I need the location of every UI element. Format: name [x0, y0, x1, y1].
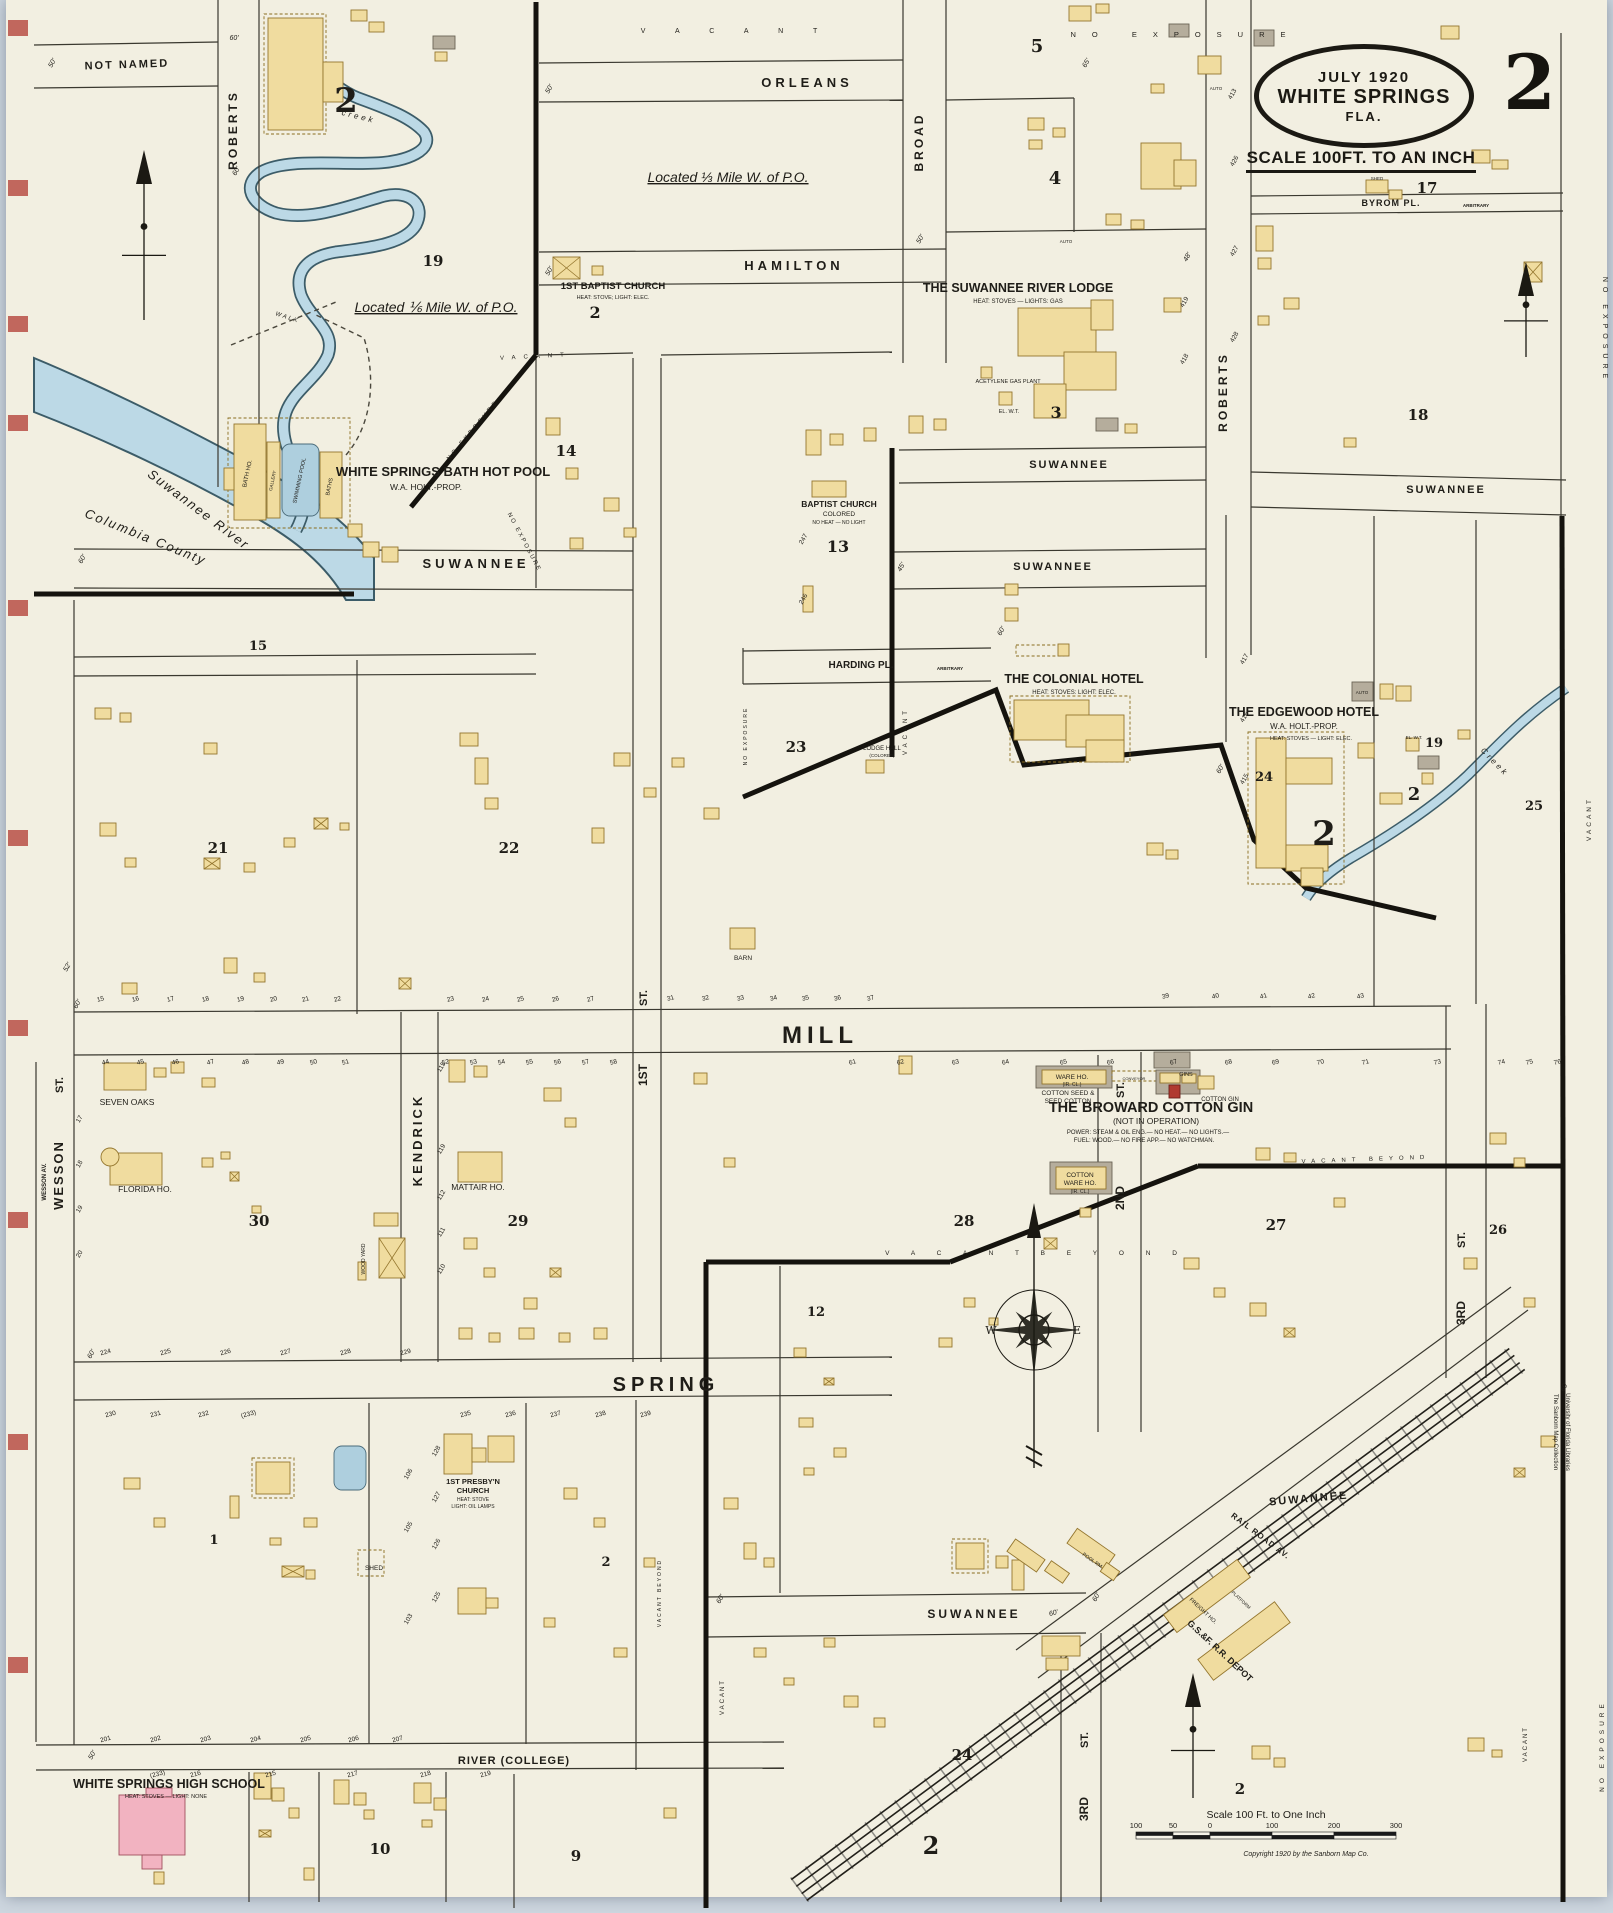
map-text: 205	[299, 1735, 312, 1745]
map-text: 239	[639, 1410, 652, 1420]
map-text: 204	[249, 1735, 262, 1745]
map-text: 217	[346, 1770, 359, 1780]
map-text: 2	[601, 1555, 610, 1570]
map-text: 428	[1229, 330, 1241, 343]
map-text: VACANT BEYOND	[657, 1559, 663, 1627]
map-text: 226	[219, 1348, 232, 1358]
building	[444, 1434, 472, 1474]
building	[224, 468, 234, 490]
map-text: AUTO	[1356, 690, 1369, 695]
map-text: 419	[1179, 295, 1191, 308]
building	[594, 1328, 607, 1339]
building	[268, 18, 323, 130]
map-text: 100	[1266, 1821, 1279, 1830]
map-text: 73	[1433, 1058, 1442, 1067]
building	[799, 1418, 813, 1427]
building	[488, 1436, 514, 1462]
building	[1252, 1746, 1270, 1759]
map-text: Scale 100 Ft. to One Inch	[1206, 1809, 1325, 1821]
building	[458, 1152, 502, 1182]
map-text: The Sanborn Map Collection	[1552, 1394, 1558, 1470]
building	[122, 983, 137, 994]
building	[1028, 118, 1044, 130]
railroad-tracks	[791, 1349, 1524, 1901]
map-text: 70	[1316, 1058, 1325, 1067]
building	[221, 1152, 230, 1159]
map-text: 103	[403, 1612, 415, 1625]
map-state: FLA.	[1346, 109, 1383, 124]
map-text: 127	[431, 1490, 443, 1503]
map-text: ARBITRARY	[937, 666, 963, 671]
map-text: 215	[264, 1770, 277, 1780]
map-text: ROBERTS	[1216, 352, 1230, 432]
building	[1160, 1073, 1180, 1083]
building	[644, 788, 656, 797]
map-text: COTTON GIN	[1201, 1097, 1239, 1103]
map-text: 48	[241, 1058, 250, 1067]
building	[1096, 418, 1118, 431]
building	[1131, 220, 1144, 229]
map-text: 106	[403, 1467, 415, 1480]
map-text: 12	[807, 1305, 825, 1320]
building	[363, 542, 379, 557]
map-text: 224	[99, 1348, 112, 1358]
building	[154, 1068, 166, 1077]
map-text: 75	[1525, 1058, 1534, 1067]
map-text: 47	[206, 1058, 215, 1067]
map-text: BYROM PL.	[1361, 198, 1420, 208]
building	[1380, 793, 1402, 804]
map-text: 15	[96, 995, 105, 1004]
map-text: 18	[1408, 406, 1429, 424]
title-oval: JULY 1920 WHITE SPRINGS FLA.	[1254, 44, 1474, 148]
map-text: 74	[1497, 1058, 1506, 1067]
building	[433, 36, 455, 49]
building	[794, 1348, 806, 1357]
map-text: MATTAIR HO.	[451, 1182, 505, 1192]
building	[364, 1810, 374, 1819]
map-text: 26	[551, 995, 560, 1004]
map-text: KENDRICK	[410, 1094, 425, 1187]
map-text: ST.	[638, 990, 650, 1006]
building	[1286, 758, 1332, 784]
map-text: VACANT	[1523, 1726, 1529, 1762]
map-text: BAPTIST CHURCH	[801, 499, 877, 509]
map-text: THE SUWANNEE RIVER LODGE	[923, 281, 1113, 295]
map-text: (IR. CL.)	[1071, 1189, 1090, 1195]
building	[1396, 686, 1411, 701]
map-text: THE COLONIAL HOTEL	[1004, 672, 1144, 686]
map-text: 60'	[996, 625, 1007, 637]
building	[1344, 438, 1356, 447]
map-text: 207	[391, 1735, 404, 1745]
map-text: 27	[586, 995, 595, 1004]
map-text: Located ⅙ Mile W. of P.O.	[355, 299, 518, 315]
building	[142, 1855, 162, 1869]
building	[1174, 160, 1196, 186]
building	[834, 1448, 846, 1457]
building	[1256, 226, 1273, 251]
map-text: 60'	[77, 553, 88, 565]
building	[1301, 868, 1323, 886]
scale-note: SCALE 100FT. TO AN INCH	[1246, 148, 1476, 173]
map-text: 2	[1312, 814, 1336, 854]
building	[101, 1148, 119, 1166]
map-text: 50'	[87, 1749, 98, 1761]
map-text: 35	[801, 994, 810, 1003]
map-text: POWER: STEAM & OIL ENG.— NO HEAT.— NO LI…	[1067, 1130, 1229, 1136]
map-text: 427	[1229, 244, 1241, 257]
building	[284, 838, 295, 847]
map-text: 25	[516, 995, 525, 1004]
map-text: 50'	[47, 57, 58, 69]
building	[489, 1333, 500, 1342]
map-text: WALK	[275, 311, 301, 324]
map-text: 227	[279, 1348, 292, 1358]
map-text: 125	[431, 1590, 443, 1603]
building	[866, 760, 884, 773]
map-text: 230	[104, 1410, 117, 1420]
map-text: NO HEAT — NO LIGHT	[812, 520, 865, 526]
map-text: 16	[131, 995, 140, 1004]
map-text: 41	[1259, 992, 1268, 1001]
map-text: 18	[75, 1159, 85, 1169]
building	[824, 1638, 835, 1647]
map-text: 58	[609, 1058, 618, 1067]
map-text: 69	[1271, 1058, 1280, 1067]
map-text: University of Florida Libraries	[1564, 1393, 1570, 1471]
building	[254, 973, 265, 982]
sanborn-map-canvas: Scale 100 Ft. to One Inch100500100200300…	[6, 0, 1613, 1913]
map-text: 229	[399, 1348, 412, 1358]
map-text: 4	[1049, 168, 1062, 189]
lot-numbers: 1516171819202122232425262731323334353637…	[75, 87, 1563, 1779]
map-sheet: Scale 100 Ft. to One Inch100500100200300…	[0, 0, 1613, 1913]
map-text: SUWANNEE	[1013, 561, 1093, 573]
building	[844, 1696, 858, 1707]
map-text: ST.	[54, 1077, 66, 1093]
map-text: HEAT: STOVES — LIGHTS: GAS	[973, 299, 1062, 305]
map-text: CONVEYOR	[1123, 1076, 1146, 1081]
map-text: FUEL: WOOD.— NO FIRE APP.— NO WATCHMAN.	[1074, 1138, 1215, 1144]
map-text: SHED	[365, 1565, 383, 1572]
map-text: 100	[1130, 1821, 1143, 1830]
building	[1169, 1085, 1180, 1098]
building	[724, 1158, 735, 1167]
map-text: 19	[236, 995, 245, 1004]
map-text: 417	[1239, 652, 1251, 665]
map-text: 37	[866, 994, 875, 1003]
map-text: 60'	[715, 1593, 726, 1605]
building	[624, 528, 636, 537]
map-text: 33	[736, 994, 745, 1003]
map-text: 24	[952, 1746, 973, 1764]
map-text: 203	[199, 1735, 212, 1745]
building	[1151, 84, 1164, 93]
map-text: 60'	[86, 1348, 97, 1360]
map-text: HEAT: STOVE	[457, 1497, 490, 1503]
building	[120, 713, 131, 722]
building	[1418, 756, 1439, 769]
map-text: 61	[848, 1058, 857, 1067]
building	[1058, 644, 1069, 656]
map-text: 24	[1255, 770, 1273, 785]
map-text: SUWANNEE	[1269, 1490, 1349, 1509]
building	[369, 22, 384, 32]
map-text: 17	[166, 995, 175, 1004]
building	[1125, 424, 1137, 433]
map-text: 2	[1408, 784, 1421, 805]
building	[1198, 1076, 1214, 1089]
building	[289, 1808, 299, 1818]
map-text: creek	[341, 108, 377, 125]
building	[909, 416, 923, 433]
map-text: WOOD YARD	[361, 1243, 367, 1274]
building	[764, 1558, 774, 1567]
building	[340, 823, 349, 830]
map-text: V A C A N T B E Y O N D	[885, 1250, 1187, 1257]
building	[374, 1213, 398, 1226]
map-text: (233)	[240, 1409, 256, 1420]
map-text: 19	[1425, 736, 1443, 751]
map-text: ACETYLENE GAS PLANT	[975, 379, 1041, 385]
map-text: HEAT: STOVES — LIGHT: ELEC.	[1270, 736, 1352, 742]
map-text: 65'	[1081, 57, 1092, 69]
building	[358, 1550, 384, 1576]
map-text: COLORED	[823, 511, 855, 518]
map-text: 22	[499, 839, 520, 857]
building	[154, 1872, 164, 1884]
map-text: 63	[951, 1058, 960, 1067]
building	[1458, 730, 1470, 739]
map-text: 54	[497, 1058, 506, 1067]
building	[874, 1718, 885, 1727]
building	[460, 733, 478, 746]
building	[1012, 1560, 1024, 1590]
map-text: 415	[1239, 772, 1251, 785]
map-text: 200	[1328, 1821, 1341, 1830]
building	[1091, 300, 1113, 330]
building	[1422, 773, 1433, 784]
building	[996, 1556, 1008, 1568]
building	[1214, 1288, 1225, 1297]
building	[464, 1238, 477, 1249]
building	[570, 538, 583, 549]
map-text: MILL	[782, 1022, 858, 1049]
building	[472, 1448, 486, 1462]
building	[964, 1298, 975, 1307]
map-text: 225	[159, 1348, 172, 1358]
building	[592, 828, 604, 843]
map-text: SEVEN OAKS	[100, 1097, 155, 1107]
building	[672, 758, 684, 767]
map-text: 5	[1031, 36, 1044, 57]
building	[1184, 1258, 1199, 1269]
building	[458, 1588, 486, 1614]
map-text: 15	[249, 639, 267, 654]
building	[594, 1518, 605, 1527]
map-text: VACANT	[720, 1679, 726, 1715]
map-text: BARN	[734, 955, 752, 962]
map-text: BROAD	[912, 113, 926, 172]
map-text: HAMILTON	[744, 258, 843, 273]
map-text: ORLEANS	[761, 75, 853, 90]
building	[230, 1496, 239, 1518]
map-text: 9	[571, 1847, 581, 1865]
building	[100, 823, 116, 836]
building	[95, 708, 111, 719]
building	[566, 468, 578, 479]
building	[1005, 584, 1018, 595]
map-text: 2	[1235, 1780, 1245, 1798]
building	[1042, 1636, 1080, 1656]
map-text: Columbia County	[83, 506, 209, 569]
building	[1166, 850, 1178, 859]
map-text: ST.	[1115, 1082, 1127, 1098]
map-text: WARE HO.	[1064, 1180, 1097, 1187]
map-text: 30	[249, 1212, 270, 1230]
map-text: W	[985, 1324, 997, 1337]
map-text: SUWANNEE	[927, 1607, 1020, 1621]
map-text: 64	[1001, 1058, 1010, 1067]
building	[544, 1618, 555, 1627]
map-text: PLATFORM	[1230, 1590, 1251, 1610]
map-text: HEAT: STOVES: LIGHT: ELEC.	[1032, 690, 1116, 696]
map-text: EL. W.T.	[1406, 735, 1423, 740]
map-text: Copyright 1920 by the Sanborn Map Co.	[1243, 1851, 1368, 1858]
building	[1086, 740, 1124, 762]
map-text: 50'	[915, 233, 926, 245]
building	[256, 1462, 290, 1494]
building	[1029, 140, 1042, 149]
building	[485, 798, 498, 809]
map-text: 68	[1224, 1058, 1233, 1067]
building	[1358, 743, 1374, 758]
building	[1250, 1303, 1266, 1316]
map-text: 228	[339, 1348, 352, 1358]
scale-bar: Scale 100 Ft. to One Inch100500100200300…	[1130, 1809, 1403, 1858]
map-text: 56	[553, 1058, 562, 1067]
building	[1064, 352, 1116, 390]
map-text: THE EDGEWOOD HOTEL	[1229, 705, 1379, 719]
map-text: ROBERTS	[226, 90, 240, 170]
map-text: 19	[75, 1204, 85, 1214]
map-text: 23	[446, 995, 455, 1004]
map-text: 1ST BAPTIST CHURCH	[561, 281, 666, 292]
building	[119, 1795, 185, 1855]
building	[999, 392, 1012, 405]
building	[125, 858, 136, 867]
map-text: WESSON AV.	[42, 1163, 48, 1200]
building	[272, 1788, 284, 1801]
building	[1256, 738, 1286, 868]
map-text: ST.	[1456, 1232, 1468, 1248]
map-text: 49	[276, 1058, 285, 1067]
building	[1256, 1148, 1270, 1160]
building	[334, 1446, 366, 1490]
building	[784, 1678, 794, 1685]
building	[592, 266, 603, 275]
map-text: FLORIDA HO.	[118, 1184, 172, 1194]
building	[1284, 298, 1299, 309]
building	[694, 1073, 707, 1084]
building	[124, 1478, 140, 1489]
map-text: 42	[1307, 992, 1316, 1001]
map-text: 55	[525, 1058, 534, 1067]
building	[744, 1543, 756, 1559]
map-text: 0	[1208, 1821, 1212, 1830]
edge-marks	[8, 20, 28, 1673]
building	[730, 928, 755, 949]
map-text: 235	[459, 1410, 472, 1420]
building	[804, 1468, 814, 1475]
building	[546, 418, 560, 435]
map-text: 60'	[229, 35, 239, 42]
building	[1096, 4, 1109, 13]
building	[544, 1088, 561, 1101]
map-text: HEAT: STOVE; LIGHT: ELEC.	[577, 295, 650, 301]
map-text: 57	[581, 1058, 590, 1067]
building	[981, 367, 992, 378]
map-text: 10	[370, 1840, 391, 1858]
map-text: 21	[208, 839, 229, 857]
note-labels: Located ⅙ Mile W. of P.O.Located ⅓ Mile …	[83, 108, 1511, 778]
map-city: WHITE SPRINGS	[1277, 86, 1450, 109]
map-text: 247	[798, 532, 810, 545]
building	[934, 419, 946, 430]
building	[1005, 608, 1018, 621]
building	[204, 743, 217, 754]
building	[559, 1333, 570, 1342]
map-text: 50'	[544, 83, 555, 95]
building	[664, 1808, 676, 1818]
building	[1018, 308, 1096, 356]
map-text: 50	[1169, 1821, 1177, 1830]
map-text: NO EXPOSURE	[1601, 277, 1608, 383]
building	[644, 1558, 655, 1567]
building	[519, 1328, 534, 1339]
building	[1080, 1208, 1091, 1217]
map-text: 238	[594, 1410, 607, 1420]
building	[1016, 645, 1064, 656]
building	[348, 524, 362, 537]
map-text: 21	[301, 995, 310, 1004]
map-text: SPRING	[613, 1374, 720, 1396]
map-text: 3RD	[1454, 1301, 1468, 1325]
building	[565, 1118, 576, 1127]
map-text: SUWANNEE	[1406, 484, 1486, 496]
building	[1198, 56, 1221, 74]
building	[704, 808, 719, 819]
map-text: SUWANNEE	[1029, 459, 1109, 471]
building	[1284, 1153, 1296, 1162]
map-text: VACANT	[1586, 797, 1593, 841]
building	[304, 1868, 314, 1880]
building	[1274, 1758, 1285, 1767]
map-text: 236	[504, 1410, 517, 1420]
building	[202, 1078, 215, 1087]
map-text: 25	[1525, 799, 1543, 814]
map-text: 1ST	[636, 1063, 650, 1086]
building	[812, 481, 846, 497]
map-text: AUTO	[1210, 86, 1223, 91]
map-text: 48'	[1182, 251, 1193, 263]
map-text: W.A. HOLT.-PROP.	[1270, 722, 1338, 731]
map-text: 29	[508, 1212, 529, 1230]
map-text: 45'	[896, 561, 907, 573]
building	[1046, 1658, 1068, 1670]
map-text: SEED COTTON	[1045, 1098, 1092, 1105]
